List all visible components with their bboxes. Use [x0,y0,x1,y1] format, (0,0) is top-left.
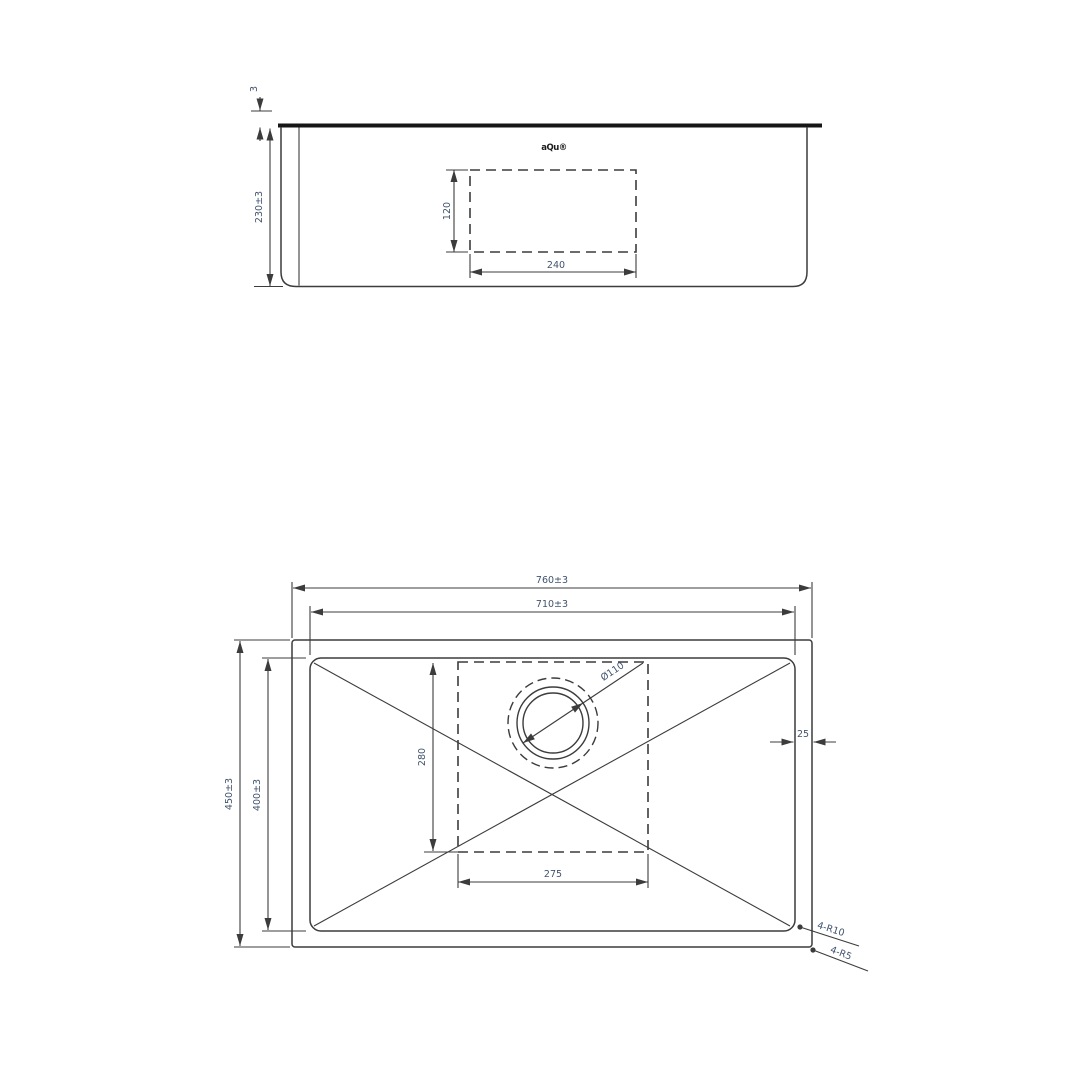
dim-label-bowl-width: 710±3 [536,599,568,610]
side-view: aQu® 120 240 3 230±3 [249,86,822,287]
dim-label-rim-thickness: 3 [249,86,260,92]
dim-label-overall-depth: 450±3 [224,778,235,810]
dim-label-side-height: 230±3 [254,191,265,223]
dim-line-drain-diameter [523,703,583,743]
plan-outer-rect [292,640,812,947]
dim-label-cutout-height: 120 [442,202,453,220]
dim-label-bowl-depth: 400±3 [252,779,263,811]
dim-label-drain-zone-width: 275 [544,869,562,880]
dim-label-rim-margin: 25 [797,729,809,740]
dim-label-overall-width: 760±3 [536,575,568,586]
plan-view: 280 275 25 760±3 710±3 450±3 400±3 [224,575,868,971]
dim-label-drain-zone-depth: 280 [417,748,428,766]
dim-label-outer-corner-radius: 4-R5 [829,945,854,963]
brand-logo: aQu® [541,143,567,153]
dim-label-cutout-width: 240 [547,260,565,271]
dim-label-drain-diameter: Ø110 [599,660,626,683]
side-cutout-dashed-rect [470,170,636,252]
sink-technical-drawing: aQu® 120 240 3 230±3 [0,0,1080,1080]
dim-label-bowl-corner-radius: 4-R10 [816,920,846,939]
